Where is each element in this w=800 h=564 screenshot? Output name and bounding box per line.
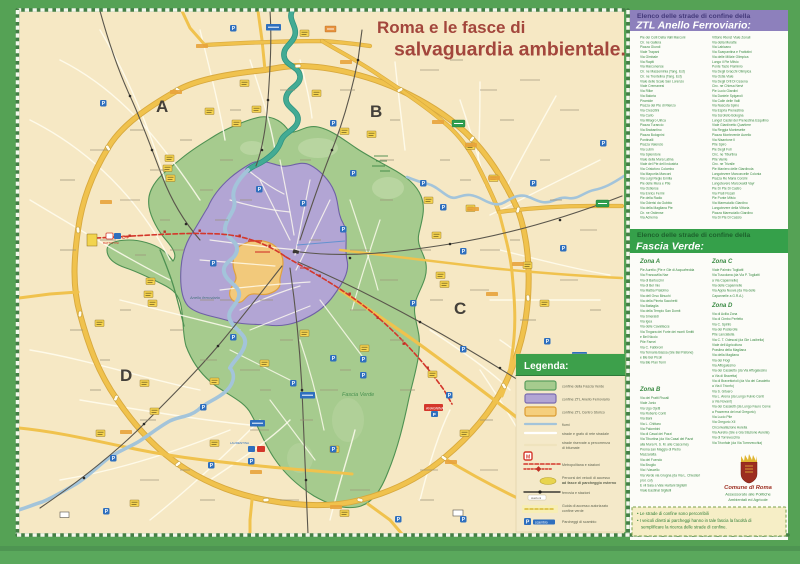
- svg-text:Zona C: Zona C: [711, 259, 733, 265]
- svg-text:Via Enrico Fermi: Via Enrico Fermi: [640, 191, 665, 195]
- svg-text:Via Reggia Montesette: Via Reggia Montesette: [712, 128, 745, 132]
- svg-text:B: B: [370, 102, 382, 121]
- svg-text:Via Battaglia: Via Battaglia: [640, 304, 659, 308]
- svg-text:Zona A: Zona A: [639, 259, 660, 265]
- svg-text:Via Ostia Viale: Via Ostia Viale: [712, 74, 734, 78]
- svg-text:D: D: [120, 366, 132, 385]
- svg-text:Via della Muratte: Via della Muratte: [712, 40, 737, 44]
- svg-text:Ple Di Pte Di Castro: Ple Di Pte Di Castro: [712, 186, 741, 190]
- svg-text:Zona D: Zona D: [711, 303, 733, 309]
- svg-text:Viale delle Scale San Lorenzo: Viale delle Scale San Lorenzo: [640, 79, 684, 83]
- svg-text:Via di Bravettorioli (da Via d: Via di Bravettorioli (da Via dei Casalet…: [712, 379, 770, 383]
- svg-text:Via Gimbale: Via Gimbale: [640, 55, 658, 59]
- svg-text:Prema san Maggio di Pietro: Prema san Maggio di Pietro: [640, 448, 681, 452]
- svg-text:Viale della Mura Latina: Viale della Mura Latina: [640, 157, 674, 161]
- svg-text:Viale Palmiro Togliatti: Viale Palmiro Togliatti: [712, 268, 744, 272]
- svg-text:confine ZTL Anello Ferroviario: confine ZTL Anello Ferroviario: [562, 398, 610, 402]
- svg-text:LAURENTINA: LAURENTINA: [230, 441, 249, 445]
- svg-text:Circ. ne Tiburtina: Circ. ne Tiburtina: [712, 152, 737, 156]
- svg-text:Circonvallazione Aurelia: Circonvallazione Aurelia: [712, 425, 747, 429]
- svg-text:Ple Lucio Giardini: Ple Lucio Giardini: [712, 89, 738, 93]
- svg-text:Via Igea: Via Igea: [640, 320, 652, 324]
- svg-text:Via della Tempio San Domit: Via della Tempio San Domit: [640, 309, 680, 313]
- svg-text:Lungotevere Marcovaldi Vayr: Lungotevere Marcovaldi Vayr: [712, 182, 756, 186]
- svg-text:Via Espria Prenestina: Via Espria Prenestina: [712, 109, 744, 113]
- svg-text:Via Nisantone II: Via Nisantone II: [712, 138, 735, 142]
- svg-text:Ple delle Mura e Ptle: Ple delle Mura e Ptle: [640, 182, 671, 186]
- svg-text:Piazza Bolognini: Piazza Bolognini: [640, 133, 665, 137]
- svg-text:Via Bruglio: Via Bruglio: [640, 463, 656, 467]
- svg-text:Cir. ne Masseminia (Tang. Est): Cir. ne Masseminia (Tang. Est): [640, 70, 685, 74]
- svg-text:Via Ble Pian Terni: Via Ble Pian Terni: [640, 361, 666, 365]
- svg-text:Ple Ponte Milvio: Ple Ponte Milvio: [712, 196, 736, 200]
- svg-text:Via Mattia Pratolino: Via Mattia Pratolino: [640, 289, 669, 293]
- svg-text:Via Degli Orti Di Cesena: Via Degli Orti Di Cesena: [712, 79, 748, 83]
- svg-text:Via Rilke: Via Rilke: [640, 89, 653, 93]
- svg-text:Viale Eastinal Sigitelli: Viale Eastinal Sigitelli: [640, 489, 672, 493]
- svg-text:A: A: [156, 97, 168, 116]
- svg-text:Mazzaratta: Mazzaratta: [640, 453, 656, 457]
- svg-text:confine ZTL Centro Storico: confine ZTL Centro Storico: [562, 411, 605, 415]
- svg-text:a Via il Trionfo): a Via il Trionfo): [712, 384, 734, 388]
- svg-text:Ple Degli Foli: Ple Degli Foli: [712, 148, 732, 152]
- svg-text:ferrovia e stazioni: ferrovia e stazioni: [562, 491, 590, 495]
- svg-text:Via Acirema: Via Acirema: [640, 216, 658, 220]
- svg-text:Via dell Orso Binuchi: Via dell Orso Binuchi: [640, 294, 671, 298]
- svg-text:strade e grafo di rete stradal: strade e grafo di rete stradale: [562, 432, 609, 436]
- svg-text:semplificare la ricerca delle: semplificare la ricerca delle strade di …: [641, 525, 727, 530]
- svg-text:• I veicoli diretti ai parcheg: • I veicoli diretti ai parcheggi hanno i…: [637, 518, 752, 523]
- svg-text:Fascia Verde:: Fascia Verde:: [636, 241, 704, 253]
- svg-text:Via Gregorio XII: Via Gregorio XII: [712, 420, 735, 424]
- svg-text:fiumi: fiumi: [562, 423, 570, 427]
- svg-text:Via delle Capannelle: Via delle Capannelle: [712, 283, 742, 287]
- svg-text:Via Daniele Spigaroli: Via Daniele Spigaroli: [712, 94, 743, 98]
- svg-text:Comune di Roma: Comune di Roma: [724, 485, 772, 491]
- svg-text:Roma e le fasce di: Roma e le fasce di: [377, 18, 525, 37]
- svg-text:Via Splendore: Via Splendore: [640, 152, 661, 156]
- svg-text:Piazza del Pte di Rienzo: Piazza del Pte di Rienzo: [640, 104, 676, 108]
- svg-text:Via Lucio Ptle: Via Lucio Ptle: [712, 415, 732, 419]
- svg-text:Via Ternaria Bassa (Gle Bel Pa: Via Ternaria Bassa (Gle Bel Pallone): [640, 350, 693, 354]
- svg-text:Via di Casal dei Pazzi: Via di Casal dei Pazzi: [640, 432, 672, 436]
- svg-text:Via dei Casalotti (da Lungo Fa: Via dei Casalotti (da Lungo Fauro Cerve: [712, 405, 771, 409]
- svg-text:Piramide: Piramide: [640, 99, 653, 103]
- svg-text:Via della Magliana Pte: Via della Magliana Pte: [640, 206, 673, 210]
- svg-text:Ptle Farnei: Ptle Farnei: [640, 340, 656, 344]
- svg-text:Piazza Re Maria Corsini: Piazza Re Maria Corsini: [712, 177, 748, 181]
- svg-text:Via Luigi Regio Emilia: Via Luigi Regio Emilia: [640, 177, 672, 181]
- svg-text:Via C. Fabbroni: Via C. Fabbroni: [640, 345, 663, 349]
- svg-text:Via Crescitini: Via Crescitini: [640, 109, 659, 113]
- svg-text:Capannelle a G.R.A.): Capannelle a G.R.A.): [712, 294, 743, 298]
- svg-text:confine verde: confine verde: [562, 509, 584, 513]
- svg-text:Piazza Monteverde Aurelio: Piazza Monteverde Aurelio: [712, 133, 751, 137]
- svg-text:Prasilea della Magliana: Prasilea della Magliana: [712, 348, 746, 352]
- svg-text:Via Bani: Via Bani: [640, 417, 652, 421]
- svg-text:Via Oderisi da Gubbio: Via Oderisi da Gubbio: [640, 201, 672, 205]
- svg-text:Via Carlo: Via Carlo: [640, 113, 654, 117]
- svg-text:Via Di Pte Di Cassio: Via Di Pte Di Cassio: [712, 216, 742, 220]
- svg-text:Via Aurelio (Gle e Gia Stazion: Via Aurelio (Gle e Gia Stazione Aurelia): [712, 430, 769, 434]
- svg-text:Via Affogalesino: Via Affogalesino: [712, 364, 736, 368]
- svg-text:prol. col): prol. col): [640, 478, 653, 482]
- svg-text:Elenco delle strade di confine: Elenco delle strade di confine della: [637, 232, 751, 239]
- svg-text:a Prazerera del mal Gregorio): a Prazerera del mal Gregorio): [712, 410, 756, 414]
- svg-text:Ambientali ed Agricole: Ambientali ed Agricole: [728, 497, 768, 502]
- svg-text:Via i Vascello: Via i Vascello: [640, 468, 660, 472]
- svg-text:Circ. ne Chiesa Nervi: Circ. ne Chiesa Nervi: [712, 84, 743, 88]
- svg-text:Via Calle delle Valli: Via Calle delle Valli: [712, 99, 740, 103]
- svg-text:Via Baloria: Via Baloria: [640, 94, 656, 98]
- svg-text:alla Mura N. S. M. alle Cascer: alla Mura N. S. M. alle Cascerna): [640, 442, 689, 446]
- svg-text:Via Ostiense: Via Ostiense: [640, 186, 659, 190]
- svg-text:Ptle Spiro: Ptle Spiro: [712, 143, 726, 147]
- svg-text:Via del Fuendo: Via del Fuendo: [640, 458, 662, 462]
- svg-text:Piazza Turancio: Piazza Turancio: [640, 123, 664, 127]
- svg-text:Via dei Pratti Fiscali: Via dei Pratti Fiscali: [640, 396, 669, 400]
- svg-text:salvaguardia ambientale.: salvaguardia ambientale.: [394, 39, 626, 61]
- svg-text:Piazza Valencio: Piazza Valencio: [640, 143, 663, 147]
- svg-text:Via Brabantino: Via Brabantino: [640, 128, 662, 132]
- svg-text:Via Roberto Conti: Via Roberto Conti: [640, 411, 666, 415]
- svg-text:Via Appia Nuova (da Via delle: Via Appia Nuova (da Via delle: [712, 289, 756, 293]
- svg-text:Lungotevere della Vittoria: Lungotevere della Vittoria: [712, 206, 749, 210]
- svg-text:Via Marconense: Via Marconense: [640, 65, 664, 69]
- svg-text:Via dei Posterolle: Via dei Posterolle: [712, 327, 738, 331]
- svg-text:Via Maresciallo Giardino: Via Maresciallo Giardino: [712, 201, 748, 205]
- svg-text:Via Rapiti: Via Rapiti: [640, 60, 654, 64]
- svg-text:Ple Aurelio (Ple e Gle di Acqu: Ple Aurelio (Ple e Gle di Acquafredda: [640, 268, 694, 272]
- svg-text:BATTISTINI: BATTISTINI: [103, 241, 119, 245]
- svg-text:Via Cristoforo Colombo: Via Cristoforo Colombo: [640, 167, 674, 171]
- svg-text:• Le strade di confine sono pe: • Le strade di confine sono percorribili: [637, 511, 709, 516]
- svg-text:Via della Magliana: Via della Magliana: [712, 353, 739, 357]
- svg-text:Via Labicano: Via Labicano: [712, 45, 731, 49]
- svg-text:P: P: [433, 412, 436, 417]
- svg-text:Via Trionfale (da Via Torrevec: Via Trionfale (da Via Torrevecchia): [712, 441, 762, 445]
- svg-text:Via Tiburtina (da Via Casal de: Via Tiburtina (da Via Casal dei Pazzi: [640, 437, 693, 441]
- svg-text:Ple dei Colli Della Valli Marc: Ple dei Colli Della Valli Marconi: [640, 36, 686, 40]
- svg-text:Via Degli Gracchi Olimpica: Via Degli Gracchi Olimpica: [712, 70, 751, 74]
- svg-text:Via Nascota Spino: Via Nascota Spino: [712, 104, 739, 108]
- svg-text:Via Scarpantina e Frattotini: Via Scarpantina e Frattotini: [712, 50, 752, 54]
- svg-text:a Via Capannelle): a Via Capannelle): [712, 278, 738, 282]
- svg-text:ZTL Anello Ferroviario:: ZTL Anello Ferroviario:: [635, 20, 751, 32]
- svg-text:Vittorio Rienzi Viale Zonali: Vittorio Rienzi Viale Zonali: [712, 36, 751, 40]
- svg-text:a Via di Bravetta): a Via di Bravetta): [712, 374, 737, 378]
- svg-text:Viale dell Agricoltura: Viale dell Agricoltura: [712, 343, 742, 347]
- svg-text:Assessorato alle Politiche: Assessorato alle Politiche: [725, 492, 771, 497]
- svg-text:Viale Jonio: Viale Jonio: [640, 401, 656, 405]
- svg-text:Parcheggi di scambio: Parcheggi di scambio: [562, 520, 596, 524]
- svg-text:Via di Bartoccini: Via di Bartoccini: [640, 278, 664, 282]
- svg-text:Percorsi dei veicoli di access: Percorsi dei veicoli di accesso: [562, 476, 610, 480]
- svg-text:Lungot Castel dei Prenestina E: Lungot Castel dei Prenestina Esquilino: [712, 118, 769, 122]
- svg-text:C: C: [454, 299, 466, 318]
- svg-text:Cir. ne Ostiense: Cir. ne Ostiense: [640, 211, 664, 215]
- svg-text:Via S. Gituero: Via S. Gituero: [712, 389, 733, 393]
- svg-text:Via delle Milizie Olimpica: Via delle Milizie Olimpica: [712, 55, 749, 59]
- svg-text:Viale Cremanesi: Viale Cremanesi: [640, 84, 664, 88]
- svg-text:Anello ferroviario: Anello ferroviario: [189, 295, 221, 300]
- svg-text:di bitumate: di bitumate: [562, 446, 580, 450]
- svg-text:Via Maporita Marconi: Via Maporita Marconi: [640, 172, 671, 176]
- svg-text:Via della Pineta Sacchetti: Via della Pineta Sacchetti: [640, 299, 678, 303]
- svg-text:Lungotevere Marconcelle Coloni: Lungotevere Marconcelle Colonia: [712, 172, 761, 176]
- svg-text:Via Tuscolana (da Via P. Togli: Via Tuscolana (da Via P. Togliatti: [712, 273, 760, 277]
- svg-text:Legenda:: Legenda:: [524, 361, 568, 372]
- svg-text:Ptle Lanciatella: Ptle Lanciatella: [712, 333, 735, 337]
- svg-text:Zona B: Zona B: [639, 387, 661, 393]
- svg-text:e Bel Nicolo: e Bel Nicolo: [640, 335, 658, 339]
- svg-text:Via di Bel mio: Via di Bel mio: [640, 283, 660, 287]
- svg-text:Via Smeraldi: Via Smeraldi: [640, 314, 659, 318]
- svg-text:Via Verde via Grugna (da Via L: Via Verde via Grugna (da Via L. Chiester…: [640, 473, 700, 477]
- svg-text:Via L. Arena (da Lungo Fulvio: Via L. Arena (da Lungo Fulvio Centi: [712, 394, 764, 398]
- svg-text:Via dei Fiogi: Via dei Fiogi: [712, 358, 730, 362]
- svg-text:Fascia Verde: Fascia Verde: [342, 392, 374, 398]
- svg-text:Circ. ne Trivalle: Circ. ne Trivalle: [712, 162, 735, 166]
- svg-text:Via Palombini: Via Palombini: [640, 427, 660, 431]
- svg-text:Via delle Cavallacce: Via delle Cavallacce: [640, 325, 670, 329]
- svg-text:Via Scrofello Bologna: Via Scrofello Bologna: [712, 113, 744, 117]
- svg-text:confine della Fascia Verde: confine della Fascia Verde: [562, 385, 604, 389]
- svg-text:Guida di accesso autorizzato: Guida di accesso autorizzato: [562, 504, 608, 508]
- svg-text:Via Lubin: Via Lubin: [640, 148, 654, 152]
- svg-text:Via Prati Fiscali: Via Prati Fiscali: [712, 191, 735, 195]
- svg-text:Piazza Maresciallo Giardino: Piazza Maresciallo Giardino: [712, 211, 753, 215]
- svg-text:Via Ugo Ojetti: Via Ugo Ojetti: [640, 406, 661, 410]
- svg-text:Cir. ne Gallera: Cir. ne Gallera: [640, 40, 661, 44]
- svg-text:Via Francavilla Nse: Via Francavilla Nse: [640, 273, 669, 277]
- svg-text:stazioni: stazioni: [531, 496, 542, 500]
- svg-text:scambio: scambio: [535, 520, 548, 524]
- svg-text:Via C. Spinfo: Via C. Spinfo: [712, 322, 731, 326]
- svg-text:a Via Novant): a Via Novant): [712, 400, 732, 404]
- svg-text:Pontinalli: Pontinalli: [640, 138, 654, 142]
- svg-text:M: M: [526, 455, 530, 461]
- svg-text:Via di Acilia Zona: Via di Acilia Zona: [712, 312, 737, 316]
- svg-text:Ple della Radio: Ple della Radio: [640, 196, 662, 200]
- svg-text:e Ble Bel Picoli: e Ble Bel Picoli: [640, 356, 662, 360]
- svg-text:E vil Saia a Vale Hartani Sigi: E vil Saia a Vale Hartani Sigitelli: [640, 484, 687, 488]
- svg-text:Via Tingara dei Forte dei mont: Via Tingara dei Forte dei monti Smitti: [640, 330, 694, 334]
- svg-text:Viale del Pte dell Industria: Viale del Pte dell Industria: [640, 162, 678, 166]
- svg-text:Piazza Giundi: Piazza Giundi: [640, 45, 661, 49]
- svg-text:Viale Giardinetto Quartiere: Viale Giardinetto Quartiere: [712, 123, 751, 127]
- svg-text:Via dei Casaletto (da Via Affo: Via dei Casaletto (da Via Affogalesino: [712, 369, 767, 373]
- svg-text:Via Milagro Ulrica: Via Milagro Ulrica: [640, 118, 666, 122]
- svg-text:Cir. ne Trentelina (Tang. Est): Cir. ne Trentelina (Tang. Est): [640, 74, 682, 78]
- svg-text:Via C. T. Odescal (da Gle Lusi: Via C. T. Odescal (da Gle Lusibella): [712, 338, 764, 342]
- svg-text:E-P: E-P: [122, 235, 130, 240]
- svg-text:Via L. Chittaro: Via L. Chittaro: [640, 422, 661, 426]
- svg-text:ad fasce di parcheggio esterno: ad fasce di parcheggio esterno: [562, 481, 617, 485]
- svg-text:Via di Cimbo Perfetto: Via di Cimbo Perfetto: [712, 317, 743, 321]
- svg-text:Ple Maniero delle Giardinola: Ple Maniero delle Giardinola: [712, 167, 754, 171]
- svg-text:Metropolitana e stazioni: Metropolitana e stazioni: [562, 463, 600, 467]
- svg-text:Ponte Tazio Flaminio: Ponte Tazio Flaminio: [712, 65, 743, 69]
- svg-text:Via di Torrevecchia: Via di Torrevecchia: [712, 436, 740, 440]
- svg-text:P: P: [526, 520, 530, 526]
- svg-text:strade riservate a percorrenza: strade riservate a percorrenza: [562, 441, 610, 445]
- svg-text:Viale Trapani: Viale Trapani: [640, 50, 659, 54]
- svg-text:Lungo il Fte Milvio: Lungo il Fte Milvio: [712, 60, 739, 64]
- svg-text:Ptle Vanile: Ptle Vanile: [712, 157, 728, 161]
- svg-text:ANAGNINA: ANAGNINA: [426, 407, 444, 411]
